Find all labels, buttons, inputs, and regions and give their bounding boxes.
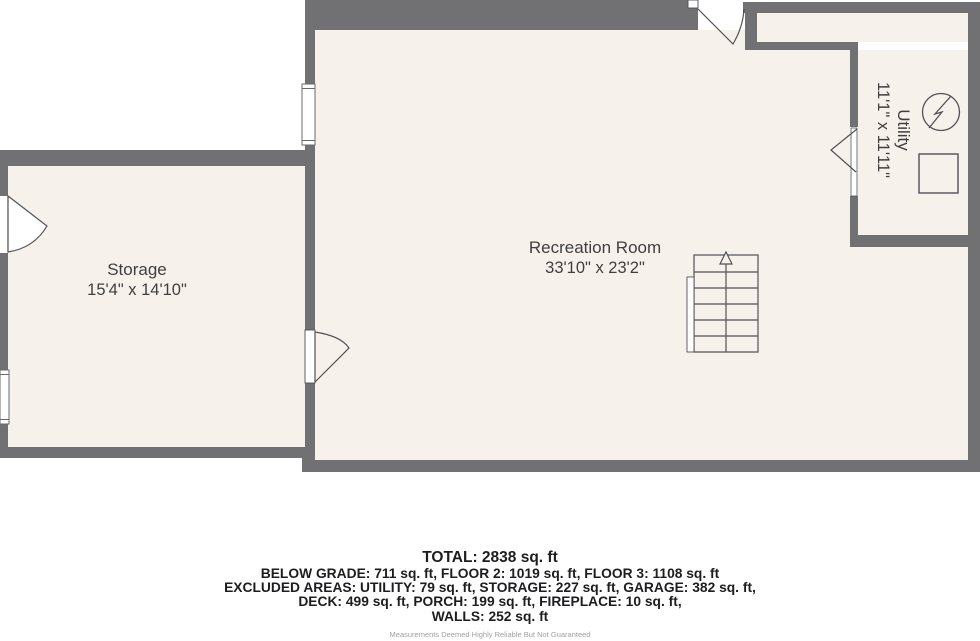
stairs-handrail <box>687 277 694 352</box>
top-right-exterior-wall <box>743 2 980 13</box>
staircase-icon <box>687 252 758 352</box>
area-summary: TOTAL: 2838 sq. ft BELOW GRADE: 711 sq. … <box>0 549 980 639</box>
total-area-text: TOTAL: 2838 sq. ft <box>0 549 980 567</box>
excluded-areas-text: EXCLUDED AREAS: UTILITY: 79 sq. ft, STOR… <box>0 581 980 595</box>
utility-bottom-wall <box>850 235 980 247</box>
measurement-disclaimer: Measurements Deemed Highly Reliable But … <box>0 630 980 639</box>
floor-areas-text: BELOW GRADE: 711 sq. ft, FLOOR 2: 1019 s… <box>0 567 980 581</box>
right-exterior-wall <box>968 13 980 462</box>
utility-room-floor-strip <box>757 13 968 42</box>
storage-left-wall-lower <box>0 424 8 458</box>
appliance-icon <box>919 154 958 193</box>
walls-area-text: WALLS: 252 sq. ft <box>0 610 980 624</box>
bottom-exterior-wall <box>302 460 980 472</box>
window-icon-storage-left <box>0 370 9 424</box>
utility-left-wall-upper <box>850 50 858 127</box>
storage-recreation-divider-wall-lower <box>305 383 315 460</box>
recreation-left-wall-upper <box>305 30 315 84</box>
recreation-room-floor-extension <box>850 247 968 460</box>
top-wall-door-step <box>688 8 698 30</box>
room-fills <box>7 13 968 460</box>
top-exterior-wall <box>305 0 688 30</box>
storage-bottom-wall <box>0 447 312 458</box>
storage-top-wall <box>0 150 315 166</box>
floor-plan-canvas: Storage 15'4" x 14'10" Recreation Room 3… <box>0 0 980 641</box>
storage-left-wall-middle <box>0 253 8 370</box>
storage-recreation-divider-wall <box>305 145 315 330</box>
utility-room-floor <box>858 50 968 235</box>
storage-left-wall-upper <box>0 150 8 196</box>
utility-strip-wall <box>757 42 858 50</box>
storage-room-floor <box>7 166 305 447</box>
recreation-room-floor <box>315 30 850 460</box>
excluded-areas-text-2: DECK: 499 sq. ft, PORCH: 199 sq. ft, FIR… <box>0 595 980 609</box>
utility-jog-wall <box>745 13 757 50</box>
floor-plan-drawing <box>0 0 980 641</box>
window-icon-recreation-left <box>302 84 315 145</box>
